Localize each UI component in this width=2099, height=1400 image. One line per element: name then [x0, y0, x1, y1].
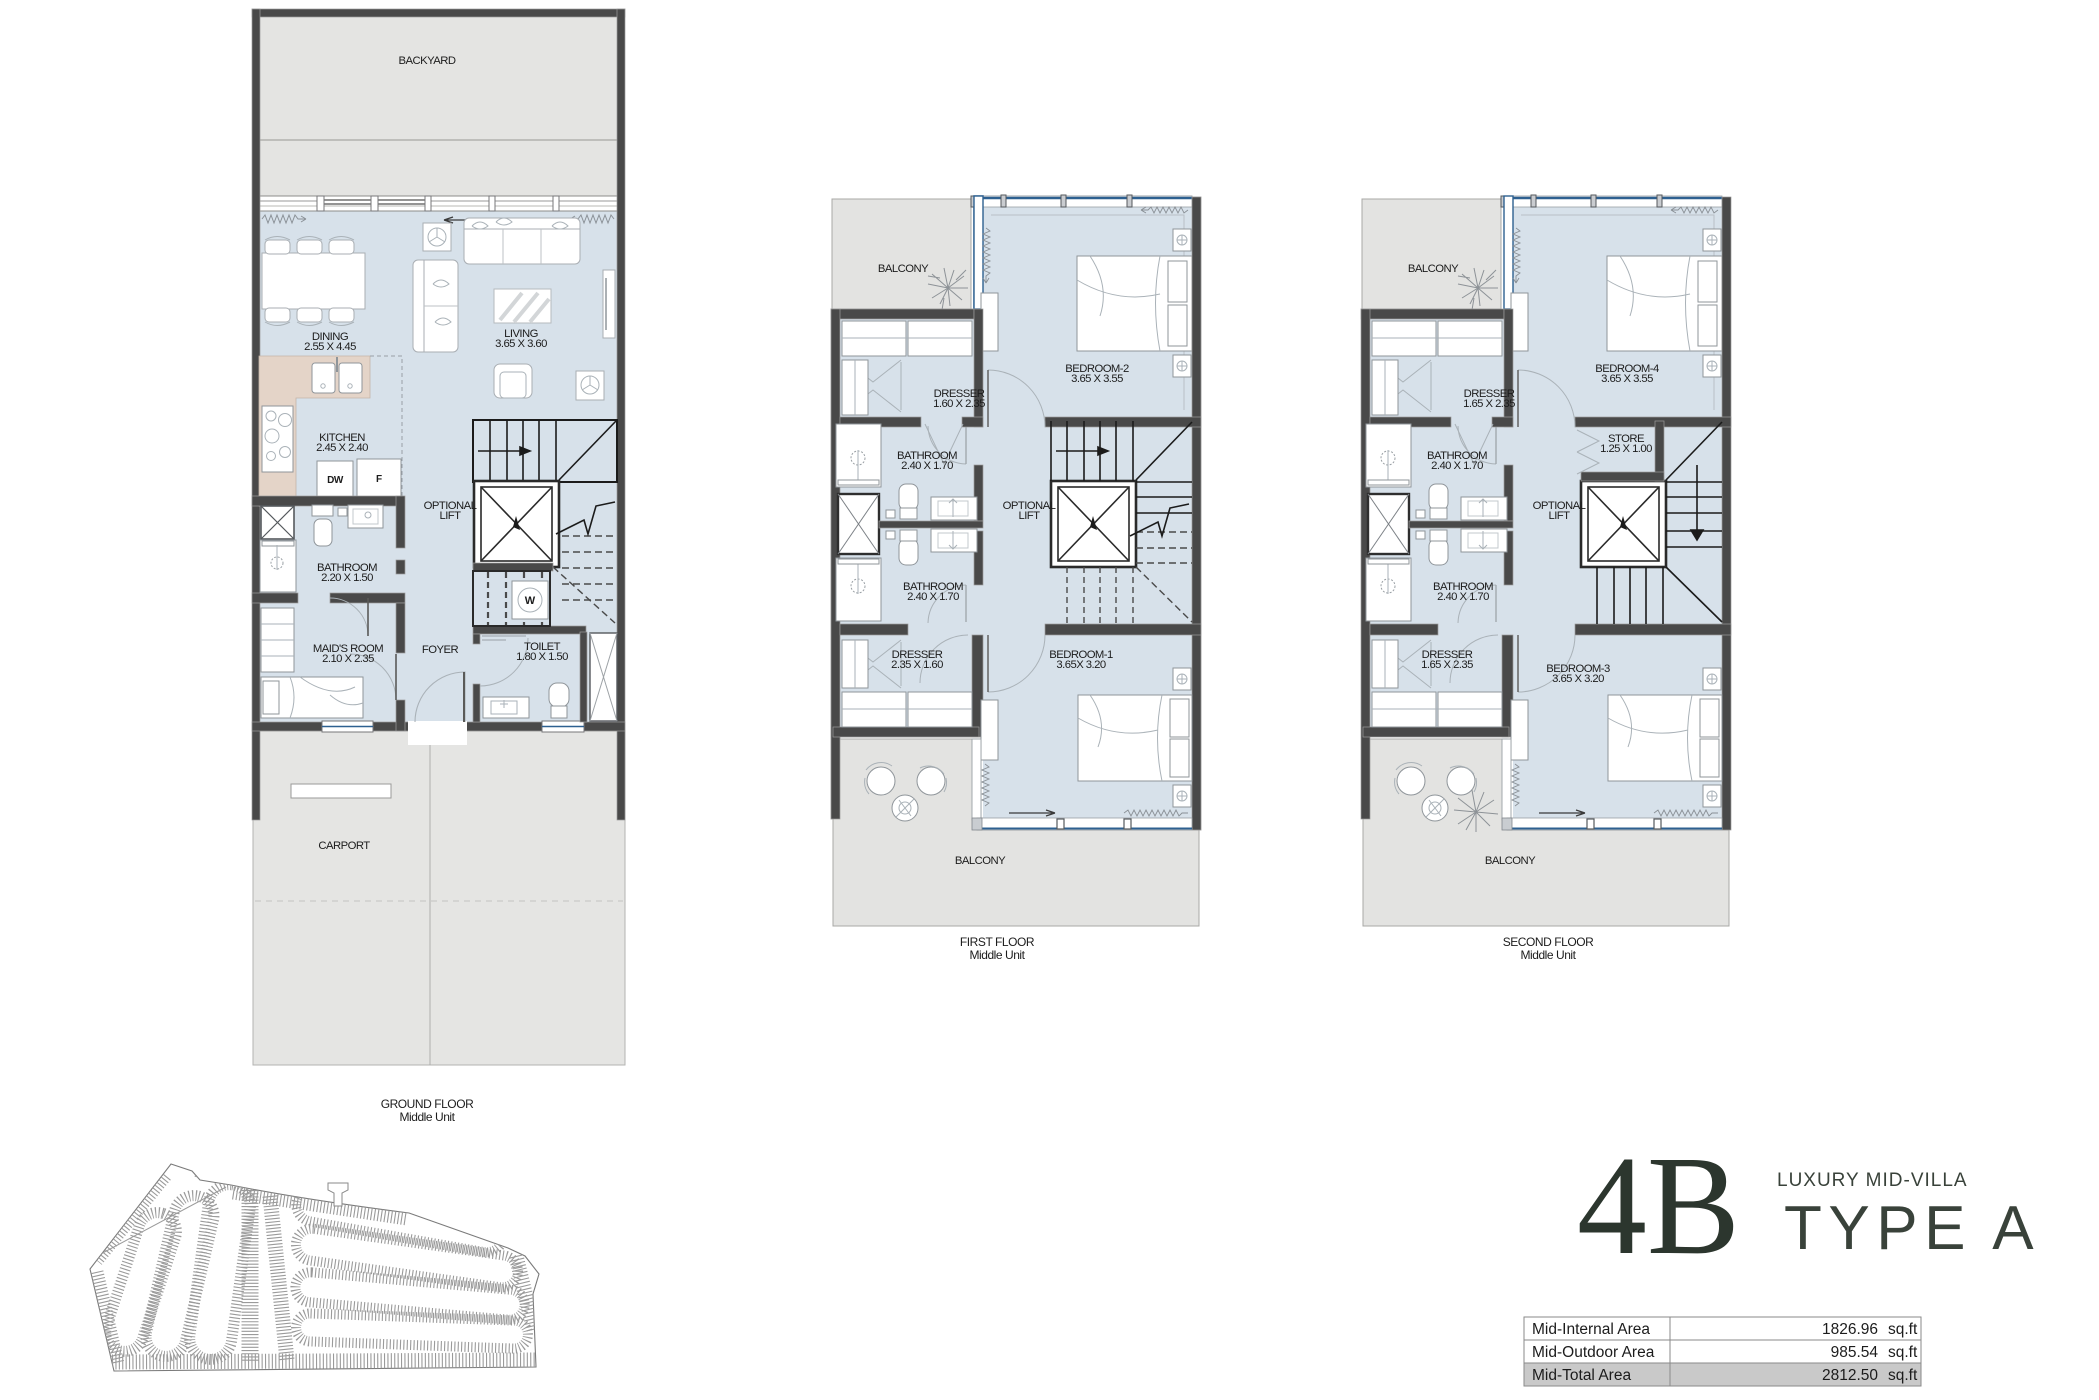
svg-text:BALCONY: BALCONY	[878, 263, 929, 275]
svg-text:LIFT: LIFT	[439, 510, 461, 522]
svg-text:3.65 X 3.55: 3.65 X 3.55	[1601, 373, 1653, 385]
svg-text:1826.96: 1826.96	[1822, 1321, 1878, 1338]
svg-text:sq.ft: sq.ft	[1888, 1321, 1918, 1338]
svg-text:SECOND FLOOR: SECOND FLOOR	[1503, 935, 1594, 949]
svg-text:Middle Unit: Middle Unit	[969, 948, 1025, 962]
svg-text:2.40 X 1.70: 2.40 X 1.70	[1437, 591, 1489, 603]
svg-text:2.20 X 1.50: 2.20 X 1.50	[321, 572, 373, 584]
svg-text:2.40 X 1.70: 2.40 X 1.70	[901, 460, 953, 472]
svg-text:Middle Unit: Middle Unit	[399, 1110, 455, 1124]
svg-text:DW: DW	[327, 475, 344, 486]
svg-text:sq.ft: sq.ft	[1888, 1367, 1918, 1384]
svg-text:CARPORT: CARPORT	[318, 840, 370, 852]
svg-text:1.25 X 1.00: 1.25 X 1.00	[1600, 443, 1652, 455]
svg-text:2.10 X 2.35: 2.10 X 2.35	[322, 653, 374, 665]
svg-text:W: W	[525, 595, 536, 607]
svg-text:BALCONY: BALCONY	[955, 855, 1006, 867]
svg-text:LUXURY MID-VILLA: LUXURY MID-VILLA	[1777, 1170, 1968, 1191]
svg-text:Mid-Outdoor Area: Mid-Outdoor Area	[1532, 1344, 1655, 1361]
svg-text:1.65 X 2.35: 1.65 X 2.35	[1421, 659, 1473, 671]
svg-text:1.60 X 2.35: 1.60 X 2.35	[933, 398, 985, 410]
svg-text:3.65 X 3.55: 3.65 X 3.55	[1071, 373, 1123, 385]
svg-text:3.65 X 3.20: 3.65 X 3.20	[1552, 673, 1604, 685]
svg-text:2.40 X 1.70: 2.40 X 1.70	[907, 591, 959, 603]
svg-text:F: F	[376, 474, 382, 485]
svg-text:BALCONY: BALCONY	[1485, 855, 1536, 867]
svg-text:BALCONY: BALCONY	[1408, 263, 1459, 275]
svg-text:LIFT: LIFT	[1548, 510, 1570, 522]
svg-text:4B: 4B	[1577, 1126, 1740, 1284]
svg-text:BACKYARD: BACKYARD	[399, 55, 456, 67]
svg-text:GROUND FLOOR: GROUND FLOOR	[381, 1097, 474, 1111]
svg-text:1.65 X 2.35: 1.65 X 2.35	[1463, 398, 1515, 410]
svg-text:FOYER: FOYER	[422, 644, 459, 656]
svg-text:2.55 X 4.45: 2.55 X 4.45	[304, 341, 356, 353]
svg-text:3.65 X 3.60: 3.65 X 3.60	[495, 338, 547, 350]
svg-text:LIFT: LIFT	[1018, 510, 1040, 522]
svg-text:sq.ft: sq.ft	[1888, 1344, 1918, 1361]
svg-text:Mid-Internal Area: Mid-Internal Area	[1532, 1321, 1650, 1338]
svg-text:2.40 X 1.70: 2.40 X 1.70	[1431, 460, 1483, 472]
svg-text:2812.50: 2812.50	[1822, 1367, 1878, 1384]
svg-text:Mid-Total Area: Mid-Total Area	[1532, 1367, 1631, 1384]
svg-text:Middle Unit: Middle Unit	[1520, 948, 1576, 962]
svg-text:3.65X 3.20: 3.65X 3.20	[1056, 659, 1105, 671]
svg-text:FIRST FLOOR: FIRST FLOOR	[960, 935, 1035, 949]
svg-text:1.80 X 1.50: 1.80 X 1.50	[516, 651, 568, 663]
svg-text:2.45 X 2.40: 2.45 X 2.40	[316, 442, 368, 454]
svg-text:2.35 X 1.60: 2.35 X 1.60	[891, 659, 943, 671]
svg-text:TYPE A: TYPE A	[1784, 1194, 2040, 1263]
svg-text:985.54: 985.54	[1831, 1344, 1879, 1361]
